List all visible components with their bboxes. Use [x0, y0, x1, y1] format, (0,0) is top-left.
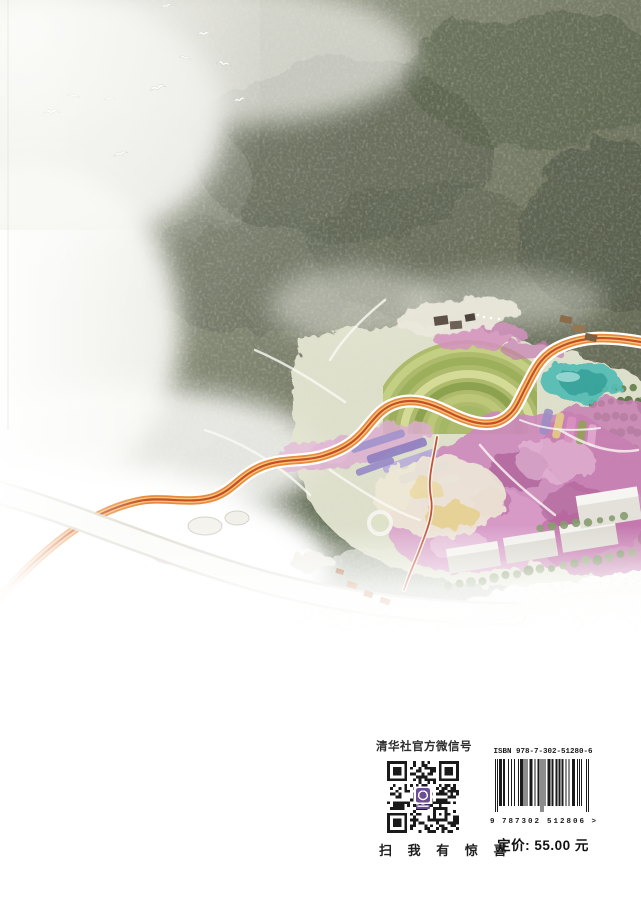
barcode-tail: >	[589, 818, 596, 826]
book-back-cover: 清华社官方微信号 扫 我 有 惊 喜 ISBN 978-7-302-51280-…	[0, 0, 641, 900]
barcode-digit-left: 9	[490, 818, 499, 826]
page-margin-line	[8, 0, 9, 430]
wechat-block: 清华社官方微信号 扫 我 有 惊 喜	[376, 738, 470, 859]
wechat-account-label: 清华社官方微信号	[376, 738, 470, 754]
price-label: 定价: 55.00 元	[490, 834, 596, 854]
ean13-barcode	[490, 758, 594, 819]
barcode-digit-group2: 512806	[544, 818, 589, 826]
isbn-block: ISBN 978-7-302-51280-6 9 787302 512806 >…	[490, 748, 596, 854]
scan-hint-text: 扫 我 有 惊 喜	[379, 840, 470, 859]
barcode-digits: 9 787302 512806 >	[490, 818, 596, 826]
pond	[540, 361, 620, 401]
wechat-qr-code	[387, 761, 459, 833]
topleft-fade	[0, 0, 260, 300]
barcode-digit-group1: 787302	[499, 818, 544, 826]
isbn-number: ISBN 978-7-302-51280-6	[490, 748, 596, 756]
cover-artwork-aerial-rendering	[0, 0, 641, 640]
